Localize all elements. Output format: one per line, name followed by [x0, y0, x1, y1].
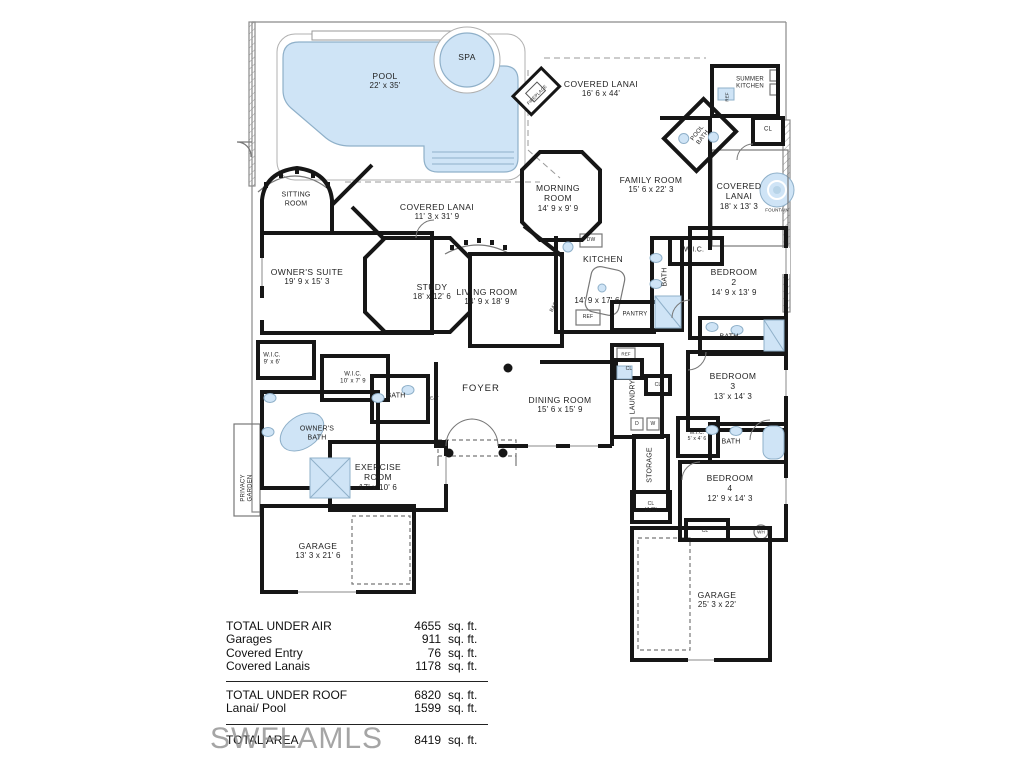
room-label-laundry: LAUNDRY [630, 380, 639, 415]
owners-shower [310, 458, 350, 498]
room-label-pantry: PANTRY [623, 311, 648, 318]
table-row: TOTAL UNDER AIR4655sq. ft. [226, 620, 488, 633]
room-label-summer-kitchen: SUMMER KITCHEN [736, 77, 764, 92]
bed3-tub [763, 426, 784, 459]
room-label-owners-bath: OWNER'S BATH [300, 425, 334, 442]
room-label-morning: MORNING ROOM14' 9 x 9' 9 [536, 183, 580, 213]
room-label-garage-right: GARAGE25' 3 x 22' [698, 590, 737, 610]
floor-plan-drawing [0, 0, 1024, 768]
room-label-living: LIVING ROOM14' 9 x 18' 9 [456, 287, 517, 307]
room-label-bed2: BEDROOM 214' 9 x 13' 9 [711, 267, 758, 297]
pool-bath-sink [677, 131, 691, 145]
label-ref-kitchen: REF [583, 314, 594, 320]
room-label-exercise: EXERCISE ROOM17' x 10' 6 [355, 462, 401, 492]
pool-planter [312, 31, 452, 40]
room-label-bath-bed2-lower: BATH [720, 334, 739, 343]
fountain-shape [760, 173, 794, 207]
room-label-storage: STORAGE [647, 447, 656, 483]
room-label-dining: DINING ROOM15' 6 x 15' 9 [529, 395, 592, 415]
room-label-wic-bed3: W.I.C. 5' x 4' 6 [688, 430, 707, 442]
room-label-covered-lanai-right: COVERED LANAI18' x 13' 3 [717, 181, 762, 211]
room-label-bed4: BEDROOM 412' 9 x 14' 3 [707, 473, 754, 503]
floor-plan-page: POOL22' x 35' SPA SITTING ROOM COVERED L… [0, 0, 1024, 768]
label-ref-summer: REF [724, 92, 729, 101]
room-label-garage-left: GARAGE13' 3 x 21' 6 [295, 541, 340, 561]
table-row: Covered Lanais1178sq. ft. [226, 660, 488, 673]
label-cl-top: CL [764, 126, 772, 133]
room-label-wic-owner-small: W.I.C. 9' x 6' [263, 353, 281, 368]
watermark: SWFLAMLS [210, 722, 383, 756]
room-label-privacy-garden: PRIVACY GARDEN [241, 474, 256, 501]
label-seat: SEAT [427, 395, 439, 400]
table-row: Covered Entry76sq. ft. [226, 647, 488, 660]
label-fountain: FOUNTAIN [765, 207, 788, 212]
table-row: Garages911sq. ft. [226, 633, 488, 646]
label-cl-laundry-2: CL [655, 382, 662, 388]
kitchen-counter-sink [563, 242, 573, 252]
room-label-foyer: FOYER [462, 383, 500, 395]
room-label-kitchen: KITCHEN [583, 254, 623, 264]
room-label-family: FAMILY ROOM15' 6 x 22' 3 [620, 175, 683, 195]
room-label-owners-suite: OWNER'S SUITE19' 9 x 15' 3 [271, 267, 343, 287]
label-cl-ac: CL (A/C) [645, 501, 658, 513]
island-sink [598, 284, 606, 292]
room-label-sitting: SITTING ROOM [281, 191, 310, 208]
room-label-wic-bed2: W.I.C. [684, 247, 704, 256]
room-label-bath-bed2-upper: BATH [662, 268, 671, 287]
label-dryer: D [635, 421, 639, 427]
room-label-spa: SPA [458, 52, 476, 62]
entry-columns [445, 364, 513, 458]
table-divider [226, 681, 488, 682]
label-ref-laundry: REF [621, 351, 630, 356]
table-row: Lanai/ Pool1599sq. ft. [226, 702, 488, 715]
room-label-bath-bed3: BATH [722, 439, 741, 448]
room-label-pool: POOL22' x 35' [369, 71, 400, 91]
label-cl-bed4: CL [702, 528, 709, 534]
label-kitchen-dims: 14' 9 x 17' 6 [574, 296, 619, 306]
room-label-bed3: BEDROOM 313' x 14' 3 [710, 371, 757, 401]
room-label-study: STUDY18' x 12' 6 [413, 282, 451, 302]
room-label-bath-hall: BATH [387, 393, 406, 402]
table-row: TOTAL UNDER ROOF6820sq. ft. [226, 689, 488, 702]
label-wh: WH [757, 529, 765, 534]
label-washer: W [651, 421, 656, 427]
room-label-wic-owner-large: W.I.C. 10' x 7' 9 [340, 372, 366, 387]
walls [258, 66, 786, 660]
room-label-covered-lanai-left: COVERED LANAI11' 3 x 31' 9 [400, 202, 474, 222]
label-cl-laundry-1: CL [626, 366, 633, 372]
room-label-covered-lanai-top: COVERED LANAI16' 6 x 44' [564, 79, 638, 99]
label-dw: DW [587, 237, 596, 243]
pool-area [277, 27, 525, 180]
